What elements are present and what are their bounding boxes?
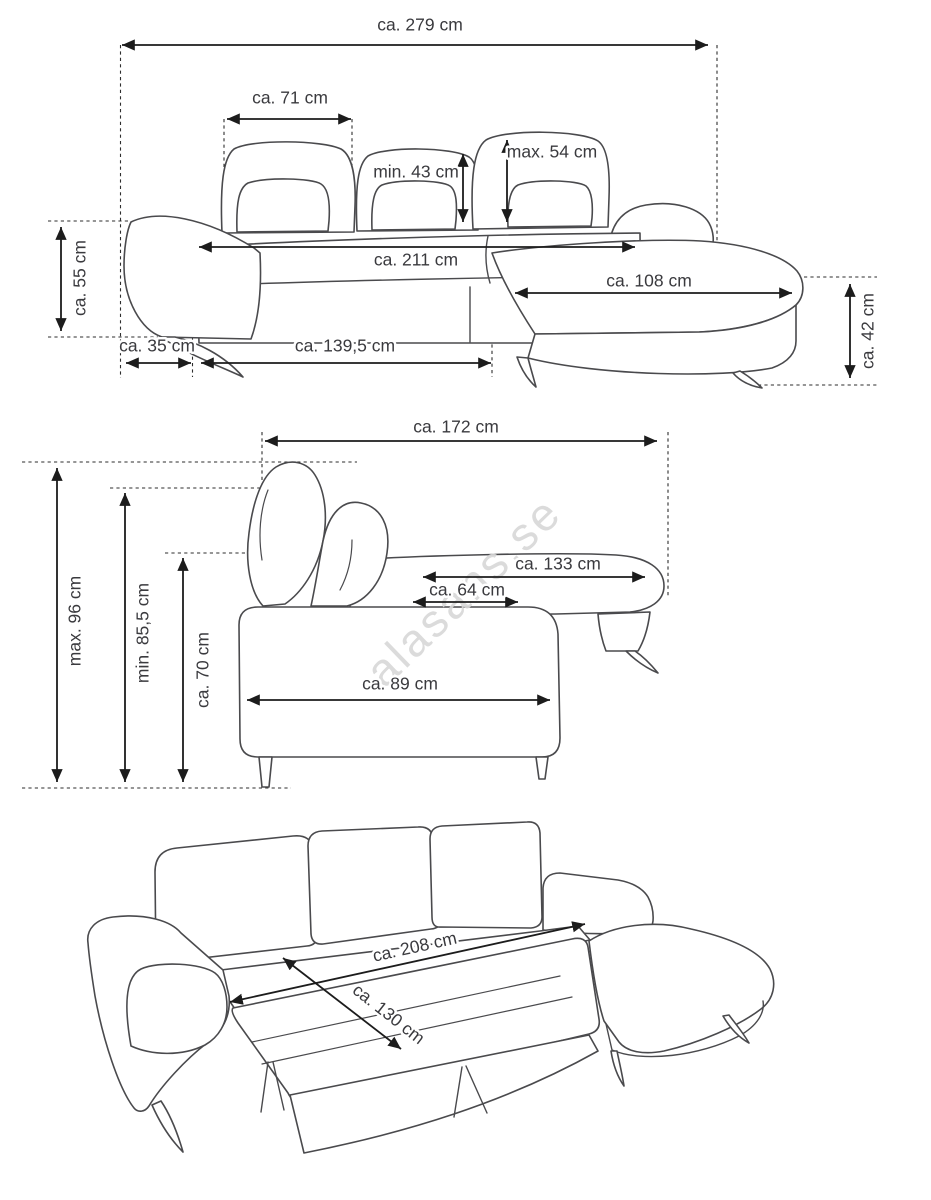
bed-chaise — [589, 924, 774, 1052]
back-pillow-middle — [372, 181, 457, 230]
side-front-leg — [259, 757, 272, 787]
sofa-dimensions-diagram: ca. 279 cm ca. 71 cm min. 43 cm max. 54 … — [0, 0, 931, 1200]
dim-label-seat-depth: ca. 64 cm — [429, 580, 505, 600]
armrest-left — [124, 216, 261, 339]
dim-label-base-width: ca. 139,5 cm — [295, 336, 395, 356]
bed-armrest-left-cushion — [127, 964, 227, 1053]
bed-arm-leg — [152, 1101, 183, 1152]
bed-view-sofa-drawing — [88, 822, 774, 1153]
dim-label-overall-width: ca. 279 cm — [377, 15, 463, 35]
bed-back-panel-2 — [308, 827, 441, 944]
bed-chaise-leg-left — [611, 1051, 624, 1086]
dim-label-backrest-min: min. 43 cm — [373, 162, 459, 182]
back-pillow-left — [237, 179, 330, 232]
diagram-canvas: ca. 279 cm ca. 71 cm min. 43 cm max. 54 … — [0, 0, 931, 1200]
side-back-leg — [536, 757, 548, 779]
side-chaise-base — [598, 612, 650, 651]
dim-label-height-max: max. 96 cm — [65, 576, 85, 666]
chaise-leg-right — [733, 371, 762, 388]
dim-label-base-depth: ca. 89 cm — [362, 674, 438, 694]
chaise-leg-left — [517, 357, 536, 387]
side-rear-leg — [626, 651, 658, 673]
dim-label-chaise-depth: ca. 133 cm — [515, 554, 601, 574]
dim-label-seat-width: ca. 211 cm — [374, 250, 458, 270]
side-view: alasans.se ca. 172 cm max. 96 cm min. 85… — [22, 417, 668, 788]
back-pillow-right — [508, 181, 593, 227]
dim-label-arm-height: ca. 55 cm — [70, 240, 90, 316]
dim-label-chaise-length: ca. 108 cm — [606, 271, 692, 291]
dim-label-cushion-width: ca. 71 cm — [252, 88, 328, 108]
dim-label-backrest-height: ca. 70 cm — [193, 632, 213, 708]
dim-label-height-min: min. 85,5 cm — [133, 583, 153, 683]
dim-label-arm-width: ca. 35 cm — [119, 336, 195, 356]
dim-label-backrest-max: max. 54 cm — [507, 142, 597, 162]
bed-back-panel-3 — [430, 822, 542, 928]
bed-view: ca. 208 cm ca. 130 cm — [88, 822, 774, 1153]
dim-label-seat-height: ca. 42 cm — [858, 293, 878, 369]
front-view: ca. 279 cm ca. 71 cm min. 43 cm max. 54 … — [48, 15, 878, 388]
dim-label-depth: ca. 172 cm — [413, 417, 499, 437]
